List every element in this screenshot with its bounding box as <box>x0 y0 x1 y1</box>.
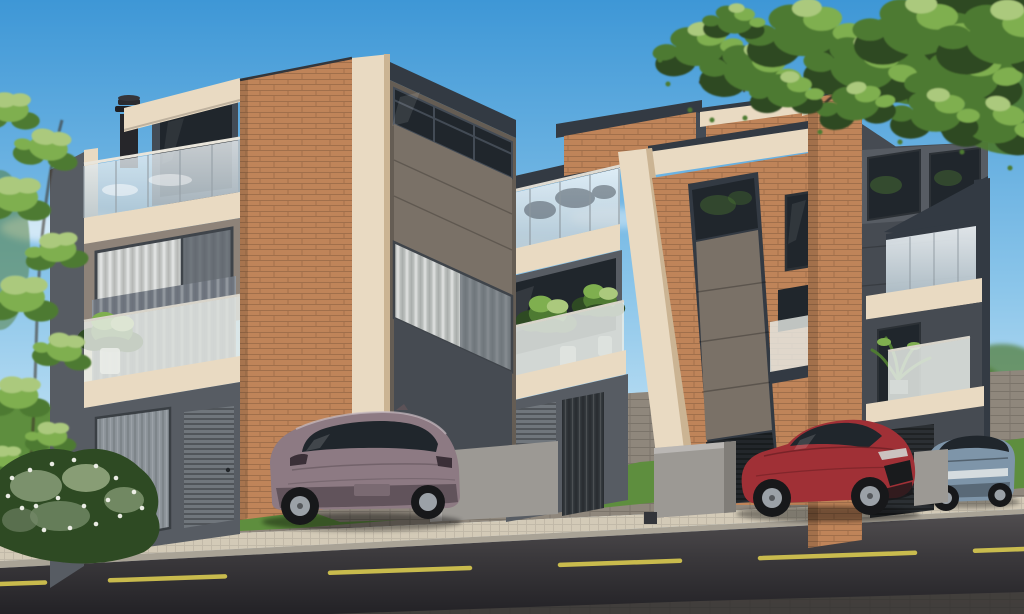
trash-bin <box>644 512 657 524</box>
architectural-render <box>0 0 1024 614</box>
flowering-bush-bottom-left <box>0 449 160 564</box>
site-wall-3 <box>914 449 948 506</box>
